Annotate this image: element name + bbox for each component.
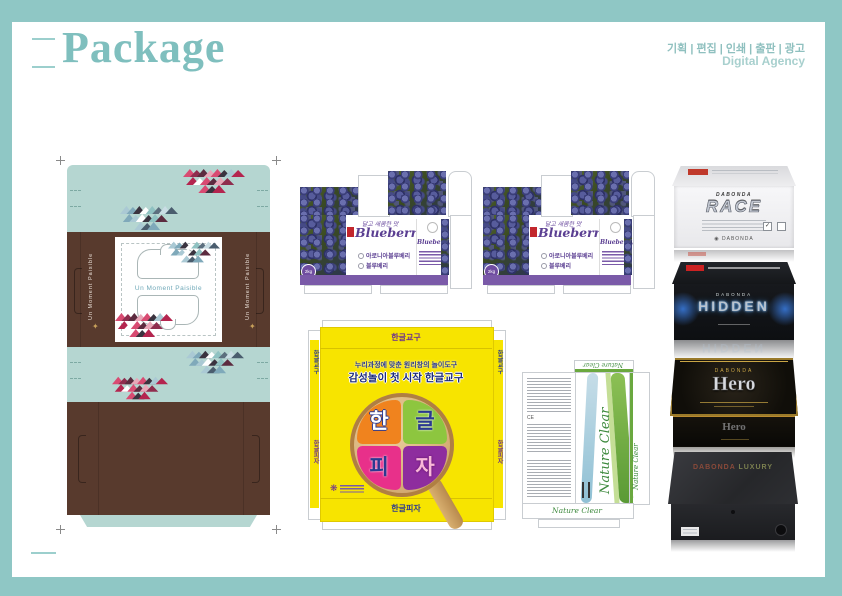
fine-print <box>602 251 624 265</box>
product-box-luxury: DABONDA LUXURY <box>668 452 798 554</box>
instructions-text <box>527 424 571 454</box>
product-box-hero: DABONDA Hero Hero <box>670 358 798 460</box>
product-name: Un Moment Paisible <box>115 285 222 292</box>
hangul-pizza-dieline: 한글교구 누리과정에 맞춘 원리창의 놀이도구 감성놀이 첫 시작 한글교구 한… <box>308 320 504 528</box>
red-label <box>688 169 708 175</box>
seal-stamp-icon <box>530 227 537 237</box>
page-title: Package <box>62 22 225 73</box>
headline-large: 감성놀이 첫 시작 한글교구 <box>320 370 492 385</box>
product-name: LUXURY <box>738 464 773 471</box>
box-front: DABONDA HIDDEN <box>674 284 794 340</box>
box-top <box>672 166 796 186</box>
blueberry-photo <box>388 171 446 215</box>
reflection <box>671 540 795 552</box>
blueberry-photo <box>300 187 358 215</box>
brand-row: DABONDA LUXURY <box>668 464 798 471</box>
blueberry-dieline-1: 달고 새콤한 맛 Blueberry 아로니아블루베리 블루베리 2kg Blu… <box>300 167 472 293</box>
pizza-paddle: 한 글 피 자 <box>350 393 454 497</box>
vertical-title: Nature Clear <box>598 382 613 494</box>
side-title: Nature Clear <box>632 400 640 490</box>
instructions-text <box>527 378 571 412</box>
agency-label: Digital Agency <box>722 54 805 68</box>
gold-logo-icon: ✦ <box>92 322 99 331</box>
triangle-pattern <box>183 166 245 196</box>
box-front: DABONDA RACE ✓ ◉ DABONDA <box>674 186 794 248</box>
brand-mark-icon: ◉ <box>714 236 719 242</box>
brand-footer: ◉ DABONDA <box>674 236 794 242</box>
flap <box>243 347 270 402</box>
mini-panel: Blueberry <box>599 219 632 275</box>
thumb-notch <box>731 510 735 514</box>
red-label <box>686 265 704 271</box>
flap-logo: 한글교구 <box>320 332 492 343</box>
product-name: Hero <box>670 373 798 396</box>
bottle-flap-outline <box>631 171 655 217</box>
box-front: Hero <box>673 416 795 447</box>
box-top: DABONDA Hero <box>670 358 798 416</box>
product-title: Blueberry <box>355 225 417 240</box>
bottom-flap-title: 한글피자 <box>320 503 492 514</box>
checkbox-icon <box>777 222 786 231</box>
flap <box>67 347 98 402</box>
hang-hole <box>427 222 438 233</box>
bottle-body-outline <box>633 215 655 289</box>
side-label-right: Un Moment Paisible <box>245 250 251 320</box>
portfolio-page: Package 기획 | 편집 | 인쇄 | 출판 | 광고 Digital A… <box>0 0 842 596</box>
white-label <box>681 527 699 536</box>
purple-band <box>483 275 631 285</box>
ingredient-1: 아로니아블루베리 <box>358 251 410 260</box>
hang-hole <box>610 222 621 233</box>
side-label-left: Un Moment Paisible <box>88 250 94 320</box>
publisher-logo: ❋ <box>330 483 366 496</box>
triangle-pattern <box>120 203 178 233</box>
box-top: DABONDA LUXURY <box>668 452 798 504</box>
round-badge <box>775 524 787 536</box>
reflection <box>674 250 794 262</box>
top-flap-title: Nature Clear <box>574 361 632 368</box>
fine-print <box>702 220 766 233</box>
headline-small: 누리과정에 맞춘 원리창의 놀이도구 <box>320 360 492 370</box>
instructions-text <box>527 460 571 498</box>
bottom-flap-title: Nature Clear <box>522 506 632 515</box>
flap <box>243 165 270 232</box>
seal-stamp-icon <box>347 227 354 237</box>
fine-print <box>419 251 441 265</box>
label-panel: Un Moment Paisible <box>115 237 222 342</box>
flap <box>67 165 98 232</box>
triangle-pattern <box>168 239 220 265</box>
product-name: HIDDEN <box>674 298 794 314</box>
checkbox-checked-icon: ✓ <box>763 222 772 231</box>
box-top <box>672 262 796 284</box>
mini-panel: Blueberry <box>416 219 449 275</box>
ingredient-2: 블루베리 <box>358 261 388 270</box>
blueberry-photo <box>483 187 541 215</box>
ingredient-2: 블루베리 <box>541 261 571 270</box>
product-title: Blueberry <box>538 225 600 240</box>
product-box-race: DABONDA RACE ✓ ◉ DABONDA <box>672 166 796 270</box>
gold-logo-icon: ✦ <box>249 322 256 331</box>
footer-mark <box>31 552 56 554</box>
bottle-flap-outline <box>448 171 472 217</box>
blueberry-photo <box>571 171 629 215</box>
glue-flap <box>80 515 257 527</box>
triangle-pattern <box>115 310 173 340</box>
purple-band <box>300 275 448 285</box>
nature-clear-dieline: Nature Clear CE Nature Clear Nature Clea… <box>518 360 652 528</box>
product-box-hidden: DABONDA HIDDEN HIDDEN <box>672 262 796 362</box>
bottle-body-outline <box>450 215 472 289</box>
triangle-pattern <box>112 374 168 402</box>
reflection: HIDDEN <box>674 340 794 360</box>
box-front <box>671 504 795 540</box>
product-name: RACE <box>674 197 794 217</box>
ingredient-1: 아로니아블루베리 <box>541 251 593 260</box>
blueberry-dieline-2: 달고 새콤한 맛 Blueberry 아로니아블루베리 블루베리 2kg Blu… <box>483 167 655 293</box>
triangle-pattern <box>186 348 244 376</box>
